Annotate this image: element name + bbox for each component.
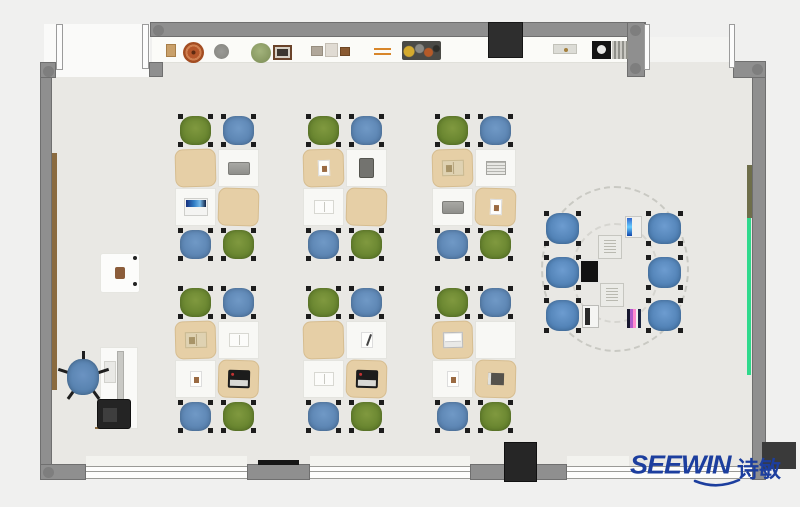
student-chair-blue <box>179 229 212 260</box>
chair-foot <box>478 314 483 319</box>
chair-foot <box>251 400 256 405</box>
chair-foot <box>221 142 226 147</box>
chair-seat <box>437 230 468 259</box>
chair-foot <box>508 142 513 147</box>
chair-foot <box>465 114 470 119</box>
chair-foot <box>478 228 483 233</box>
chair-foot <box>465 400 470 405</box>
student-chair-green <box>222 229 255 260</box>
chair-foot <box>465 286 470 291</box>
chair-foot <box>678 255 683 260</box>
chair-foot <box>349 286 354 291</box>
chair-seat <box>223 116 254 145</box>
chair-seat <box>351 288 382 317</box>
teacher-side-table <box>100 253 140 293</box>
pod-device-laptop-silver <box>582 305 599 328</box>
wall-board-green <box>747 218 751 375</box>
pod-device-sketch-box <box>600 283 624 307</box>
pod-chair <box>545 299 580 332</box>
chair-seat <box>546 257 579 288</box>
wall-left <box>40 62 52 480</box>
chair-foot <box>646 255 651 260</box>
chair-foot <box>508 314 513 319</box>
student-desk <box>432 188 473 226</box>
chair-foot <box>435 142 440 147</box>
chair-foot <box>178 314 183 319</box>
student-desk <box>432 360 473 398</box>
chair-foot <box>251 114 256 119</box>
chair-foot <box>349 428 354 433</box>
student-chair-green <box>350 401 383 432</box>
chair-foot <box>221 314 226 319</box>
chair-foot <box>478 400 483 405</box>
chair-foot <box>251 142 256 147</box>
chair-foot <box>379 114 384 119</box>
student-desk <box>346 359 388 398</box>
student-chair-green <box>479 401 512 432</box>
chair-foot <box>349 142 354 147</box>
cluster-3 <box>432 113 516 261</box>
chair-foot <box>251 228 256 233</box>
chair-foot <box>306 314 311 319</box>
shelf-box-small-1 <box>311 46 323 56</box>
chair-foot <box>478 142 483 147</box>
shelf-fruit-tray <box>402 41 441 60</box>
student-desk <box>218 149 259 187</box>
shelf-pot-terracotta <box>183 42 204 63</box>
shelf-black-cabinet <box>488 22 523 58</box>
chair-foot <box>544 255 549 260</box>
entry-door-leaf <box>142 24 149 69</box>
chair-foot <box>379 228 384 233</box>
chair-foot <box>544 328 549 333</box>
student-chair-blue <box>307 229 340 260</box>
chair-foot <box>178 114 183 119</box>
chair-seat <box>180 230 211 259</box>
cluster-2 <box>303 113 387 261</box>
shelf-box-small-2 <box>325 43 338 57</box>
chair-foot <box>646 328 651 333</box>
student-chair-green <box>436 287 469 318</box>
chair-seat <box>546 300 579 331</box>
doorway-threshold <box>646 37 729 62</box>
chair-foot <box>208 428 213 433</box>
chair-foot <box>178 142 183 147</box>
chair-foot <box>336 142 341 147</box>
chair-seat <box>223 288 254 317</box>
student-desk <box>346 187 388 226</box>
chair-foot <box>478 428 483 433</box>
cluster-6 <box>432 285 516 433</box>
wall-post <box>149 62 163 77</box>
chair-foot <box>576 211 581 216</box>
student-chair-blue <box>436 229 469 260</box>
chair-foot <box>379 256 384 261</box>
chair-foot <box>306 114 311 119</box>
student-desk <box>175 360 216 398</box>
student-chair-green <box>179 287 212 318</box>
dark-cabinet-bottom <box>504 442 537 482</box>
wall-joint-dot <box>752 64 763 75</box>
chair-foot <box>646 241 651 246</box>
desk-item-tablet-dark <box>359 158 374 178</box>
chair-foot <box>208 314 213 319</box>
chair-foot <box>465 256 470 261</box>
entry-door-leaf <box>56 24 63 70</box>
chair-foot <box>379 142 384 147</box>
chair-foot <box>646 211 651 216</box>
chair-foot <box>251 256 256 261</box>
chair-foot <box>221 228 226 233</box>
chair-seat <box>480 288 511 317</box>
chair-foot <box>435 256 440 261</box>
wall-top <box>150 22 646 37</box>
chair-foot <box>478 114 483 119</box>
student-desk <box>346 149 387 187</box>
shelf-plate-gray <box>214 44 229 59</box>
student-desk <box>218 359 260 398</box>
chair-foot <box>336 256 341 261</box>
student-desk <box>175 188 216 226</box>
wall-joint-dot <box>43 66 54 77</box>
desk-item-laptop-open-black <box>355 370 377 389</box>
chair-foot <box>576 298 581 303</box>
chair-seat <box>223 402 254 431</box>
chair-foot <box>336 400 341 405</box>
pod-device-phone-screen <box>627 309 641 328</box>
chair-foot <box>221 286 226 291</box>
chair-foot <box>349 400 354 405</box>
desk-item-paper <box>190 371 202 387</box>
student-chair-blue <box>179 401 212 432</box>
chair-foot <box>379 286 384 291</box>
chair-foot <box>379 428 384 433</box>
chair-foot <box>178 256 183 261</box>
chair-seat <box>546 213 579 244</box>
pod-device-tv-black <box>579 259 600 284</box>
student-chair-green <box>479 229 512 260</box>
chair-seat <box>437 116 468 145</box>
side-door-leaf <box>729 24 735 68</box>
teacher-office-chair <box>64 356 102 398</box>
chair-foot <box>379 314 384 319</box>
chair-foot <box>478 286 483 291</box>
chair-foot <box>465 142 470 147</box>
chair-foot <box>306 400 311 405</box>
desk-item-book-open-tan <box>441 160 463 177</box>
chair-seat <box>308 402 339 431</box>
desk-item-paper-pen <box>361 332 373 348</box>
classroom-floorplan: SEEWIN 诗敏 <box>0 0 800 507</box>
chair-foot <box>221 400 226 405</box>
chair-foot <box>208 142 213 147</box>
desk-item-paper <box>317 160 329 176</box>
chair-foot <box>336 428 341 433</box>
desk-item-laptop-open-black <box>227 370 249 389</box>
student-chair-blue <box>350 287 383 318</box>
desk-item-laptop-closed <box>442 201 464 214</box>
chair-foot <box>678 328 683 333</box>
chair-foot <box>221 114 226 119</box>
chair-seat <box>308 288 339 317</box>
desk-item-laptop-open-blue <box>184 198 208 216</box>
teacher-keyboard <box>104 361 116 383</box>
student-chair-green <box>307 287 340 318</box>
chair-seat <box>308 230 339 259</box>
student-desk <box>218 187 260 226</box>
student-desk <box>475 187 517 226</box>
chair-seat <box>480 402 511 431</box>
chair-seat <box>180 402 211 431</box>
chair-foot <box>349 114 354 119</box>
desk-item-paper <box>447 371 459 387</box>
chair-foot <box>508 256 513 261</box>
shelf-black-box-circle <box>592 41 611 59</box>
chair-seat <box>437 402 468 431</box>
student-desk <box>175 320 217 359</box>
student-chair-blue <box>222 287 255 318</box>
seewin-logo: SEEWIN 诗敏 <box>630 450 800 492</box>
chair-foot <box>544 211 549 216</box>
student-desk <box>346 321 387 359</box>
pod-device-sketch-box <box>598 235 622 259</box>
desk-item-book-dark <box>487 373 503 385</box>
chair-foot <box>435 400 440 405</box>
logo-swoosh-icon <box>693 477 741 495</box>
student-desk <box>303 320 345 359</box>
chair-foot <box>435 428 440 433</box>
cluster-4 <box>175 285 259 433</box>
chair-seat <box>308 116 339 145</box>
window-sill <box>86 456 247 466</box>
student-chair-green <box>307 115 340 146</box>
chair-foot <box>208 286 213 291</box>
chair-foot <box>178 400 183 405</box>
chair-foot <box>178 228 183 233</box>
wall-right <box>752 61 766 480</box>
side-door-leaf <box>644 24 650 70</box>
printer <box>97 399 131 429</box>
shelf-box-tan <box>166 44 176 57</box>
student-desk <box>432 148 474 187</box>
chair-foot <box>508 286 513 291</box>
chair-foot <box>208 228 213 233</box>
logo-cjk-text: 诗敏 <box>737 452 781 484</box>
student-desk <box>303 188 344 226</box>
cluster-1 <box>175 113 259 261</box>
desk-item-book-open <box>314 372 334 386</box>
chair-foot <box>306 228 311 233</box>
chair-seat <box>351 116 382 145</box>
chair-foot <box>678 285 683 290</box>
chair-foot <box>646 298 651 303</box>
chair-foot <box>336 314 341 319</box>
chair-foot <box>306 256 311 261</box>
chair-foot <box>306 286 311 291</box>
desk-item-book-open <box>229 333 249 347</box>
shelf-plant-green <box>251 43 271 63</box>
shelf-slat-rack <box>612 41 628 59</box>
chair-seat <box>648 213 681 244</box>
chair-foot <box>208 400 213 405</box>
chair-foot <box>379 400 384 405</box>
student-chair-green <box>436 115 469 146</box>
chair-foot <box>508 428 513 433</box>
chair-foot <box>508 400 513 405</box>
chair-foot <box>576 241 581 246</box>
chair-foot <box>336 228 341 233</box>
desk-item-book-open-tan <box>184 332 206 349</box>
student-chair-blue <box>479 115 512 146</box>
student-chair-green <box>222 401 255 432</box>
wall-joint-dot <box>630 63 641 74</box>
chair-foot <box>678 211 683 216</box>
chair-foot <box>478 256 483 261</box>
chair-foot <box>251 314 256 319</box>
chair-foot <box>435 228 440 233</box>
chair-seat <box>437 288 468 317</box>
chair-foot <box>576 285 581 290</box>
chair-seat <box>180 116 211 145</box>
chair-seat <box>480 230 511 259</box>
pod-chair <box>647 256 682 289</box>
student-chair-blue <box>222 115 255 146</box>
chair-foot <box>678 241 683 246</box>
chair-foot <box>508 114 513 119</box>
chair-foot <box>465 428 470 433</box>
wall-joint-dot <box>630 25 641 36</box>
chair-seat <box>351 402 382 431</box>
shelf-photo-frame <box>273 45 292 60</box>
student-desk <box>432 320 474 359</box>
desk-item-book-open <box>314 200 334 214</box>
student-desk <box>218 321 259 359</box>
pod-chair <box>647 299 682 332</box>
chair-seat <box>223 230 254 259</box>
student-chair-green <box>179 115 212 146</box>
chair-foot <box>208 114 213 119</box>
chair-foot <box>576 328 581 333</box>
shelf-tray-small <box>553 44 577 54</box>
student-desk <box>303 360 344 398</box>
chair-foot <box>336 286 341 291</box>
student-chair-green <box>350 229 383 260</box>
chair-foot <box>508 228 513 233</box>
student-chair-blue <box>307 401 340 432</box>
chair-foot <box>646 285 651 290</box>
desk-item-paper <box>489 199 501 215</box>
chair-foot <box>435 286 440 291</box>
chair-foot <box>678 298 683 303</box>
student-desk <box>475 359 517 398</box>
chair-foot <box>465 314 470 319</box>
chair-seat <box>67 359 99 395</box>
desk-item-laptop-open-silver <box>442 332 462 349</box>
chair-foot <box>221 256 226 261</box>
wall-joint-dot <box>43 467 54 478</box>
cluster-5 <box>303 285 387 433</box>
logo-text: SEEWIN <box>630 451 731 480</box>
pod-chair <box>545 212 580 245</box>
chair-foot <box>544 298 549 303</box>
wall-board-brown <box>52 153 57 390</box>
pier-black-bar <box>258 460 299 465</box>
chair-foot <box>544 285 549 290</box>
student-chair-blue <box>479 287 512 318</box>
chair-foot <box>251 428 256 433</box>
chair-foot <box>208 256 213 261</box>
chair-foot <box>306 428 311 433</box>
chair-seat <box>351 230 382 259</box>
chair-foot <box>544 241 549 246</box>
student-chair-blue <box>350 115 383 146</box>
pod-chair <box>647 212 682 245</box>
chair-seat <box>180 288 211 317</box>
chair-seat <box>480 116 511 145</box>
pod-device-monitor-blue <box>625 216 642 238</box>
pod-chair <box>545 256 580 289</box>
chair-foot <box>435 114 440 119</box>
chair-foot <box>465 228 470 233</box>
wall-joint-dot <box>153 25 164 36</box>
student-desk <box>475 321 516 359</box>
desk-item-laptop-closed <box>228 162 250 175</box>
chair-foot <box>349 228 354 233</box>
chair-foot <box>349 314 354 319</box>
window-pier <box>247 464 310 480</box>
chair-foot <box>251 286 256 291</box>
chair-foot <box>178 286 183 291</box>
chair-foot <box>221 428 226 433</box>
chair-foot <box>306 142 311 147</box>
window-sill <box>310 456 470 466</box>
student-desk <box>303 148 345 187</box>
desk-item-notebook <box>486 161 506 175</box>
chair-foot <box>178 428 183 433</box>
shelf-box-small-3 <box>340 47 350 56</box>
chair-foot <box>349 256 354 261</box>
window-sill <box>567 456 629 466</box>
shelf-chopsticks <box>374 48 391 55</box>
chair-seat <box>648 257 681 288</box>
chair-foot <box>435 314 440 319</box>
student-desk <box>475 149 516 187</box>
chair-seat <box>648 300 681 331</box>
student-desk <box>175 148 217 187</box>
chair-foot <box>336 114 341 119</box>
student-chair-blue <box>436 401 469 432</box>
